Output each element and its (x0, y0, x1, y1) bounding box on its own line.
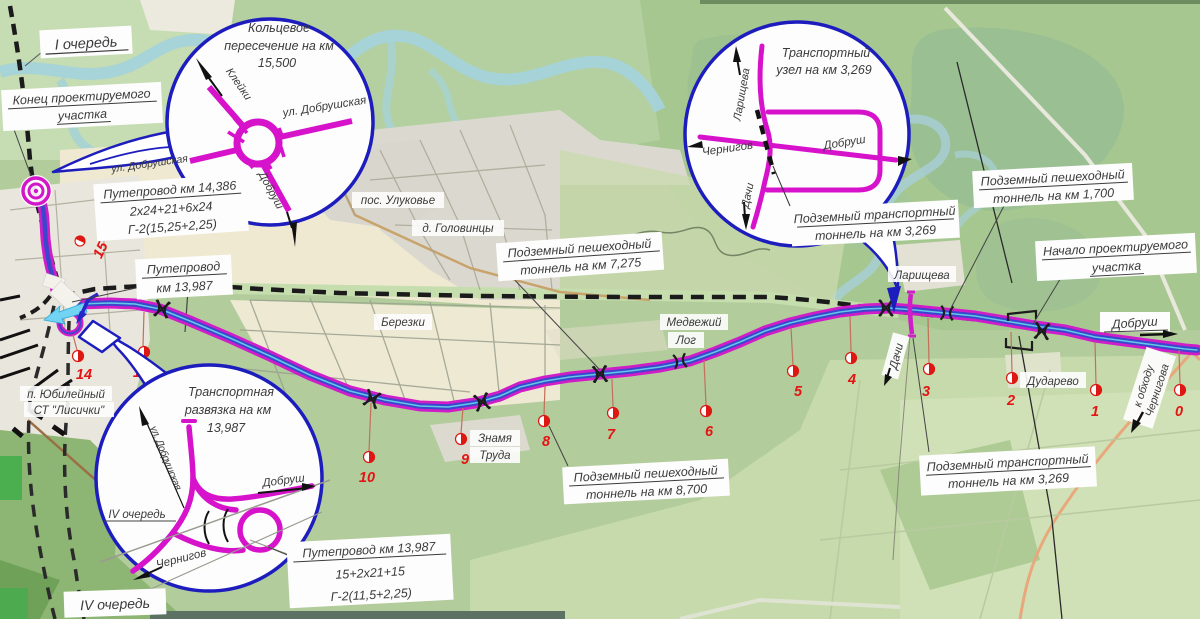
svg-text:8: 8 (542, 434, 551, 450)
svg-text:15,500: 15,500 (258, 56, 296, 70)
svg-text:д. Головинцы: д. Головинцы (422, 223, 494, 235)
svg-text:участка: участка (1091, 259, 1142, 276)
svg-text:п. Юбилейный: п. Юбилейный (27, 389, 105, 401)
svg-text:3: 3 (922, 384, 930, 400)
svg-text:2: 2 (1006, 393, 1015, 409)
svg-text:пос. Улуковье: пос. Улуковье (361, 195, 435, 207)
svg-text:6: 6 (705, 424, 714, 440)
svg-text:1: 1 (1091, 404, 1099, 420)
svg-text:Лог: Лог (675, 335, 696, 347)
svg-text:участка: участка (57, 107, 108, 124)
svg-text:узел на км 3,269: узел на км 3,269 (775, 63, 872, 77)
svg-text:14: 14 (76, 367, 92, 383)
svg-text:Кольцевое: Кольцевое (248, 21, 310, 35)
svg-text:7: 7 (607, 427, 616, 443)
svg-text:5: 5 (794, 384, 803, 400)
svg-text:0: 0 (1175, 404, 1183, 420)
svg-text:Медвежий: Медвежий (667, 317, 723, 329)
svg-text:4: 4 (847, 372, 856, 388)
svg-text:Транспортная: Транспортная (188, 385, 274, 399)
svg-text:пересечение на км: пересечение на км (224, 39, 334, 53)
svg-text:IV очередь: IV очередь (80, 595, 150, 613)
svg-text:9: 9 (461, 452, 469, 468)
svg-text:IV очередь: IV очередь (108, 509, 165, 521)
svg-text:развязка на км: развязка на км (184, 403, 272, 417)
svg-text:Дударево: Дударево (1025, 376, 1079, 388)
svg-text:СТ "Лисички": СТ "Лисички" (34, 405, 105, 417)
svg-text:Знамя: Знамя (478, 433, 512, 445)
svg-text:Березки: Березки (381, 317, 425, 329)
svg-text:13,987: 13,987 (207, 421, 246, 435)
svg-text:10: 10 (359, 470, 375, 486)
svg-text:Транспортный: Транспортный (782, 46, 871, 60)
svg-text:Труда: Труда (479, 450, 510, 462)
svg-text:Ларищева: Ларищева (893, 270, 949, 282)
svg-text:км 13,987: км 13,987 (156, 278, 214, 295)
